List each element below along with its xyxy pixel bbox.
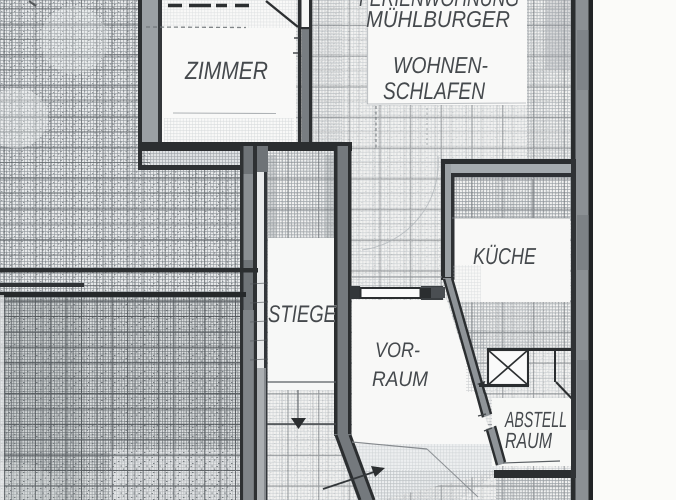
svg-text:WOHNEN-: WOHNEN- — [393, 52, 488, 78]
svg-text:RAUM: RAUM — [372, 368, 428, 391]
svg-text:ZIMMER: ZIMMER — [184, 57, 268, 85]
svg-text:KÜCHE: KÜCHE — [473, 243, 537, 269]
svg-text:SCHLAFEN: SCHLAFEN — [383, 78, 486, 105]
svg-text:RAUM: RAUM — [505, 428, 552, 453]
svg-text:MÜHLBURGER: MÜHLBURGER — [366, 6, 510, 32]
svg-text:VOR-: VOR- — [375, 339, 420, 362]
svg-text:STIEGE: STIEGE — [268, 301, 337, 328]
